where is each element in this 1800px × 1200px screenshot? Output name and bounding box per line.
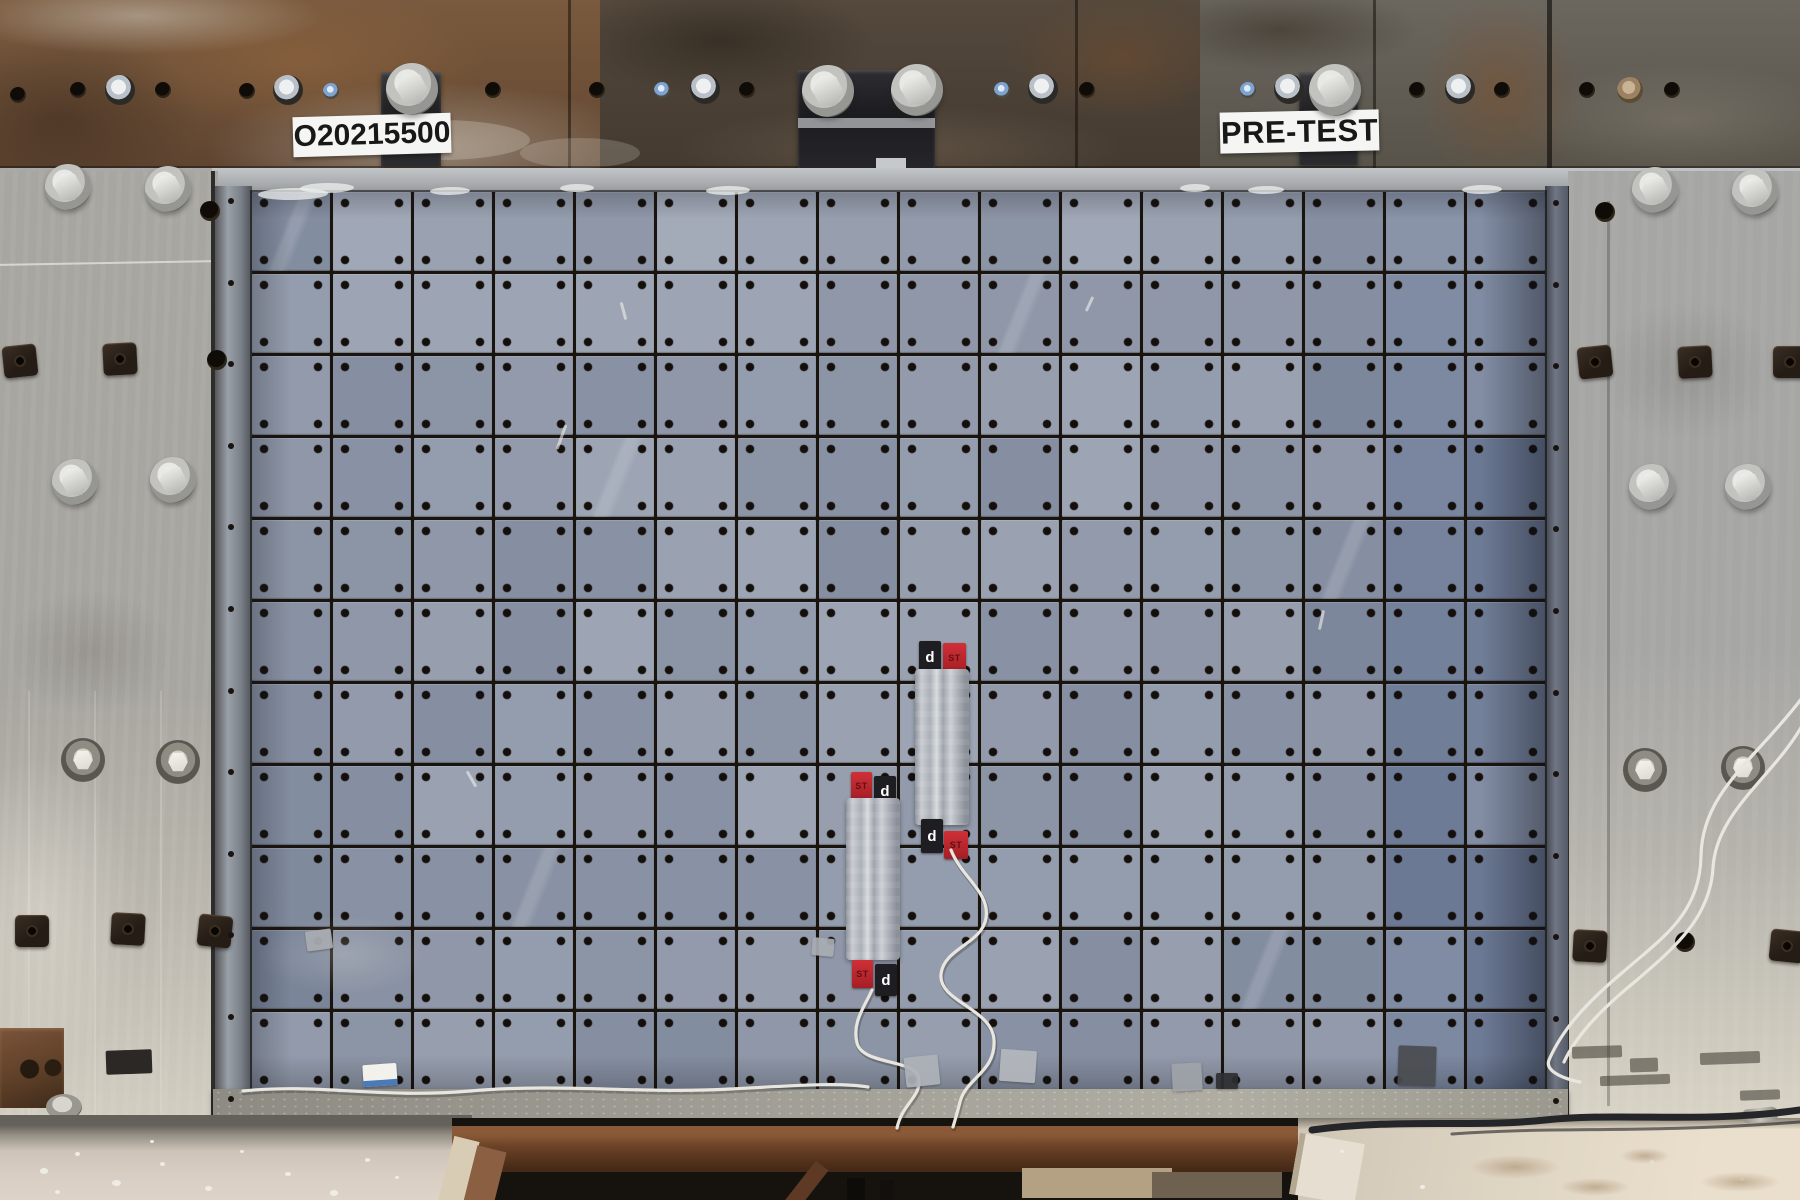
tile-scratch bbox=[1318, 610, 1325, 630]
panel-tile bbox=[981, 766, 1059, 845]
panel-tile bbox=[252, 356, 330, 435]
panel-tile bbox=[1143, 438, 1221, 517]
panel-tile bbox=[1224, 766, 1302, 845]
panel-tile bbox=[1224, 520, 1302, 599]
panel-tile bbox=[738, 192, 816, 271]
sensor-code: ST bbox=[950, 840, 963, 850]
panel-tile bbox=[576, 848, 654, 927]
edge-screw-dot bbox=[1553, 771, 1559, 777]
panel-tile bbox=[576, 930, 654, 1009]
panel-tile bbox=[414, 438, 492, 517]
white-board-strip bbox=[1289, 1133, 1365, 1200]
sensor-red-tab: ST bbox=[852, 960, 873, 988]
panel-tile bbox=[252, 438, 330, 517]
panel-tile bbox=[414, 520, 492, 599]
panel-tile bbox=[1224, 356, 1302, 435]
panel-tile bbox=[1062, 602, 1140, 681]
panel-tile bbox=[495, 192, 573, 271]
rusty-support-beam bbox=[452, 1126, 1312, 1172]
panel-tile bbox=[252, 848, 330, 927]
pre-test-text: PRE-TEST bbox=[1220, 112, 1378, 151]
edge-screw-dot bbox=[228, 280, 234, 286]
panel-tile bbox=[1467, 520, 1545, 599]
edge-screw-dot bbox=[228, 198, 234, 204]
panel-tile bbox=[1305, 438, 1383, 517]
panel-tile bbox=[333, 766, 411, 845]
bottom-left-smudge bbox=[258, 915, 428, 995]
panel-tile bbox=[657, 848, 735, 927]
panel-tile bbox=[1386, 930, 1464, 1009]
panel-tile bbox=[738, 848, 816, 927]
duct-tape-patch bbox=[904, 1054, 941, 1087]
panel-tile bbox=[576, 192, 654, 271]
paint-splatter bbox=[1340, 1150, 1344, 1153]
panel-tile bbox=[819, 684, 897, 763]
column-seam bbox=[1607, 201, 1610, 1106]
panel-tile bbox=[1305, 520, 1383, 599]
panel-tile bbox=[576, 602, 654, 681]
ground-stain bbox=[1700, 1172, 1780, 1192]
panel-tile bbox=[1386, 602, 1464, 681]
duct-tape-patch bbox=[1216, 1073, 1238, 1089]
panel-tile bbox=[1467, 274, 1545, 353]
panel-tile bbox=[1386, 274, 1464, 353]
panel-tile bbox=[738, 520, 816, 599]
panel-tile bbox=[576, 438, 654, 517]
panel-tile bbox=[576, 684, 654, 763]
pre-test-label: PRE-TEST bbox=[1220, 109, 1380, 153]
panel-tile bbox=[1386, 356, 1464, 435]
panel-tile bbox=[1062, 848, 1140, 927]
edge-screw-dot bbox=[1553, 608, 1559, 614]
tile-scratch bbox=[556, 424, 568, 449]
base-bolt-blobs bbox=[14, 1056, 66, 1082]
panel-tile bbox=[333, 274, 411, 353]
panel-tile bbox=[414, 274, 492, 353]
panel-tile bbox=[333, 930, 411, 1009]
sensor-logo: d bbox=[925, 649, 934, 666]
panel-tile bbox=[1062, 520, 1140, 599]
edge-screw-dot bbox=[228, 606, 234, 612]
panel-tile bbox=[738, 602, 816, 681]
band-seam bbox=[1075, 0, 1078, 171]
panel-tile bbox=[981, 684, 1059, 763]
panel-tile bbox=[414, 192, 492, 271]
pit-post bbox=[880, 1180, 894, 1200]
panel-tile bbox=[495, 520, 573, 599]
edge-screw-dot bbox=[228, 524, 234, 530]
trench-pit bbox=[452, 1118, 1312, 1200]
edge-screw-dot bbox=[228, 361, 234, 367]
sensor-red-tab: ST bbox=[944, 831, 968, 859]
panel-tile bbox=[1143, 930, 1221, 1009]
edge-screw-dot bbox=[228, 932, 234, 938]
panel-tile bbox=[414, 602, 492, 681]
panel-tile bbox=[495, 274, 573, 353]
panel-tile bbox=[1386, 520, 1464, 599]
panel-tile bbox=[1143, 520, 1221, 599]
panel-tile bbox=[495, 766, 573, 845]
tape-remnant-mark bbox=[1700, 1051, 1760, 1065]
pit-post bbox=[847, 1178, 865, 1200]
panel-tile bbox=[657, 766, 735, 845]
cable-fitting bbox=[1741, 1106, 1778, 1124]
edge-screw-dot bbox=[228, 1096, 234, 1102]
panel-tile bbox=[333, 356, 411, 435]
duct-tape-patch bbox=[305, 928, 334, 951]
panel-tile bbox=[819, 356, 897, 435]
concrete-ground-left bbox=[0, 1115, 472, 1200]
panel-tile bbox=[657, 192, 735, 271]
edge-screw-dot bbox=[1553, 1016, 1559, 1022]
panel-edge-frame-left bbox=[215, 186, 252, 1091]
panel-tile bbox=[981, 274, 1059, 353]
panel-tile bbox=[819, 192, 897, 271]
panel-tile bbox=[1305, 766, 1383, 845]
panel-tile bbox=[1143, 602, 1221, 681]
panel-tile bbox=[1062, 766, 1140, 845]
panel-tile bbox=[333, 192, 411, 271]
wire-label-card bbox=[362, 1063, 397, 1087]
panel-tile bbox=[738, 438, 816, 517]
sensor-code: ST bbox=[855, 781, 868, 791]
clamp-bracket-center bbox=[798, 70, 935, 170]
panel-tile bbox=[657, 684, 735, 763]
panel-tile bbox=[1143, 766, 1221, 845]
panel-tile bbox=[981, 848, 1059, 927]
panel-tile bbox=[576, 520, 654, 599]
tape-remnant-mark bbox=[1630, 1058, 1658, 1073]
duct-tape-patch bbox=[1171, 1062, 1202, 1092]
panel-tile bbox=[252, 274, 330, 353]
panel-tile bbox=[333, 684, 411, 763]
top-steel-band: O20215500 PRE-TEST bbox=[0, 0, 1800, 171]
edge-screw-dot bbox=[1553, 445, 1559, 451]
tile-scratch bbox=[466, 770, 478, 787]
panel-tile bbox=[1062, 930, 1140, 1009]
panel-tile bbox=[1386, 848, 1464, 927]
panel-tile bbox=[1224, 848, 1302, 927]
left-steel-column bbox=[0, 171, 218, 1117]
panel-tile bbox=[252, 766, 330, 845]
panel-tile bbox=[738, 356, 816, 435]
panel-tile bbox=[738, 930, 816, 1009]
panel-tile bbox=[495, 438, 573, 517]
band-seam bbox=[1547, 0, 1552, 171]
panel-tile bbox=[900, 274, 978, 353]
test-id-label: O20215500 bbox=[292, 113, 451, 157]
test-id-text: O20215500 bbox=[293, 116, 451, 154]
panel-tile bbox=[657, 520, 735, 599]
panel-tile bbox=[1062, 192, 1140, 271]
panel-tile bbox=[1062, 684, 1140, 763]
paint-splatter bbox=[240, 1150, 244, 1153]
panel-tile bbox=[657, 274, 735, 353]
paint-splatter bbox=[365, 1158, 370, 1162]
paint-splatter bbox=[40, 1168, 48, 1174]
panel-tile bbox=[1305, 684, 1383, 763]
panel-tile bbox=[1305, 930, 1383, 1009]
panel-tile bbox=[495, 602, 573, 681]
bracket-silver-bar bbox=[798, 118, 935, 128]
panel-tile bbox=[1062, 274, 1140, 353]
edge-screw-dot bbox=[1553, 934, 1559, 940]
panel-tile bbox=[495, 356, 573, 435]
panel-tile bbox=[657, 930, 735, 1009]
paint-splatter bbox=[75, 1152, 80, 1156]
ground-stain bbox=[1620, 1148, 1670, 1164]
panel-tile bbox=[738, 766, 816, 845]
duct-tape-patch bbox=[999, 1049, 1037, 1083]
panel-tile bbox=[1467, 684, 1545, 763]
panel-tile bbox=[495, 930, 573, 1009]
panel-tile bbox=[1224, 438, 1302, 517]
panel-tile bbox=[1224, 274, 1302, 353]
panel-tile bbox=[1305, 602, 1383, 681]
panel-tile bbox=[252, 602, 330, 681]
tape-remnant-mark bbox=[1572, 1045, 1622, 1059]
panel-tile bbox=[576, 274, 654, 353]
panel-tile bbox=[1224, 602, 1302, 681]
panel-tile bbox=[900, 438, 978, 517]
panel-tile bbox=[1386, 192, 1464, 271]
panel-tile bbox=[1467, 356, 1545, 435]
panel-tile bbox=[1467, 766, 1545, 845]
panel-tile bbox=[1305, 274, 1383, 353]
panel-tile bbox=[1467, 438, 1545, 517]
edge-screw-dot bbox=[1553, 363, 1559, 369]
panel-tile bbox=[981, 356, 1059, 435]
panel-tile bbox=[819, 520, 897, 599]
panel-tile bbox=[1224, 684, 1302, 763]
panel-tile bbox=[900, 930, 978, 1009]
edge-screw-dot bbox=[228, 688, 234, 694]
sensor-code: ST bbox=[856, 969, 869, 979]
edge-screw-dot bbox=[1553, 200, 1559, 206]
edge-screw-dot bbox=[1553, 690, 1559, 696]
panel-tile bbox=[414, 684, 492, 763]
panel-tile bbox=[819, 438, 897, 517]
paint-splatter bbox=[160, 1162, 165, 1166]
panel-tile bbox=[1467, 192, 1545, 271]
slot-hole bbox=[106, 1049, 153, 1075]
panel-tile bbox=[576, 356, 654, 435]
panel-tile bbox=[1062, 356, 1140, 435]
panel-tile bbox=[900, 192, 978, 271]
edge-screw-dot bbox=[1553, 1098, 1559, 1104]
panel-tile bbox=[900, 520, 978, 599]
panel-tile bbox=[1467, 602, 1545, 681]
sensor-black-tab: d bbox=[921, 819, 943, 853]
panel-tile bbox=[1224, 192, 1302, 271]
panel-tile bbox=[981, 438, 1059, 517]
edge-screw-dot bbox=[1553, 526, 1559, 532]
paint-splatter bbox=[330, 1190, 338, 1196]
panel-tile bbox=[981, 520, 1059, 599]
sill-smear bbox=[430, 187, 470, 196]
panel-tile bbox=[252, 520, 330, 599]
edge-screw-dot bbox=[228, 1014, 234, 1020]
sensor-black-tab: d bbox=[875, 964, 897, 996]
panel-tile bbox=[738, 684, 816, 763]
paint-splatter bbox=[1420, 1185, 1425, 1189]
test-wall-photo: O20215500 PRE-TEST bbox=[0, 0, 1800, 1200]
panel-tile bbox=[495, 848, 573, 927]
panel-tile bbox=[657, 356, 735, 435]
panel-tile bbox=[981, 930, 1059, 1009]
tile-scratch bbox=[620, 302, 628, 320]
panel-tile bbox=[333, 848, 411, 927]
edge-screw-dot bbox=[228, 443, 234, 449]
ground-stain bbox=[1470, 1155, 1560, 1179]
paint-splatter bbox=[150, 1140, 154, 1143]
sensor-logo: d bbox=[927, 828, 936, 845]
panel-tile bbox=[414, 930, 492, 1009]
panel-tile bbox=[1467, 848, 1545, 927]
panel-tile bbox=[1143, 274, 1221, 353]
panel-tile bbox=[333, 602, 411, 681]
panel-tile bbox=[1143, 192, 1221, 271]
panel-tile bbox=[657, 602, 735, 681]
panel-tile bbox=[1062, 438, 1140, 517]
panel-tile bbox=[1386, 766, 1464, 845]
panel-tile bbox=[1305, 848, 1383, 927]
ground-stain bbox=[1560, 1178, 1630, 1196]
paint-splatter bbox=[395, 1176, 399, 1179]
panel-tile bbox=[333, 438, 411, 517]
panel-tile bbox=[1467, 930, 1545, 1009]
wire-scratch-line bbox=[0, 260, 215, 266]
edge-screw-dot bbox=[1553, 282, 1559, 288]
panel-tile bbox=[252, 192, 330, 271]
panel-tile bbox=[1305, 192, 1383, 271]
panel-tile bbox=[495, 684, 573, 763]
panel-tile bbox=[1143, 848, 1221, 927]
panel-tile bbox=[414, 766, 492, 845]
duct-tape-patch bbox=[1397, 1045, 1436, 1086]
panel-tile bbox=[1386, 438, 1464, 517]
sensor-tape-strip bbox=[915, 669, 969, 825]
panel-tile bbox=[819, 602, 897, 681]
panel-tile bbox=[1386, 684, 1464, 763]
paint-splatter bbox=[205, 1186, 212, 1191]
panel-tile bbox=[819, 274, 897, 353]
sensor-code: ST bbox=[948, 653, 961, 663]
panel-tile bbox=[900, 356, 978, 435]
panel-tile bbox=[576, 766, 654, 845]
panel-tile bbox=[1143, 684, 1221, 763]
sensor-tape-strip bbox=[846, 798, 900, 960]
paint-splatter bbox=[55, 1190, 60, 1194]
sensor-logo: d bbox=[881, 972, 890, 989]
panel-edge-frame-right bbox=[1545, 186, 1568, 1091]
right-steel-column bbox=[1568, 171, 1800, 1120]
panel-tile bbox=[1224, 930, 1302, 1009]
edge-screw-dot bbox=[1553, 853, 1559, 859]
panel-tile bbox=[414, 356, 492, 435]
panel-tile bbox=[1143, 356, 1221, 435]
panel-tile bbox=[657, 438, 735, 517]
tile-scratch bbox=[1085, 296, 1094, 312]
pit-back-concrete bbox=[1022, 1168, 1172, 1198]
shock-sensor-upper: d ST d ST bbox=[915, 641, 969, 861]
panel-tile bbox=[414, 848, 492, 927]
panel-tile bbox=[333, 520, 411, 599]
panel-tile bbox=[981, 602, 1059, 681]
paint-smear bbox=[520, 138, 640, 168]
panel-tile bbox=[738, 274, 816, 353]
edge-screw-dot bbox=[228, 851, 234, 857]
sensor-red-tab: ST bbox=[851, 772, 872, 800]
panel-tile bbox=[252, 684, 330, 763]
edge-screw-dot bbox=[228, 769, 234, 775]
panel-tile bbox=[1305, 356, 1383, 435]
panel-tile bbox=[981, 192, 1059, 271]
duct-tape-patch bbox=[811, 937, 834, 957]
pit-back-concrete-dim bbox=[1152, 1172, 1282, 1198]
tape-remnant-mark bbox=[1740, 1089, 1780, 1100]
shock-sensor-lower: ST d ST d bbox=[846, 772, 900, 998]
